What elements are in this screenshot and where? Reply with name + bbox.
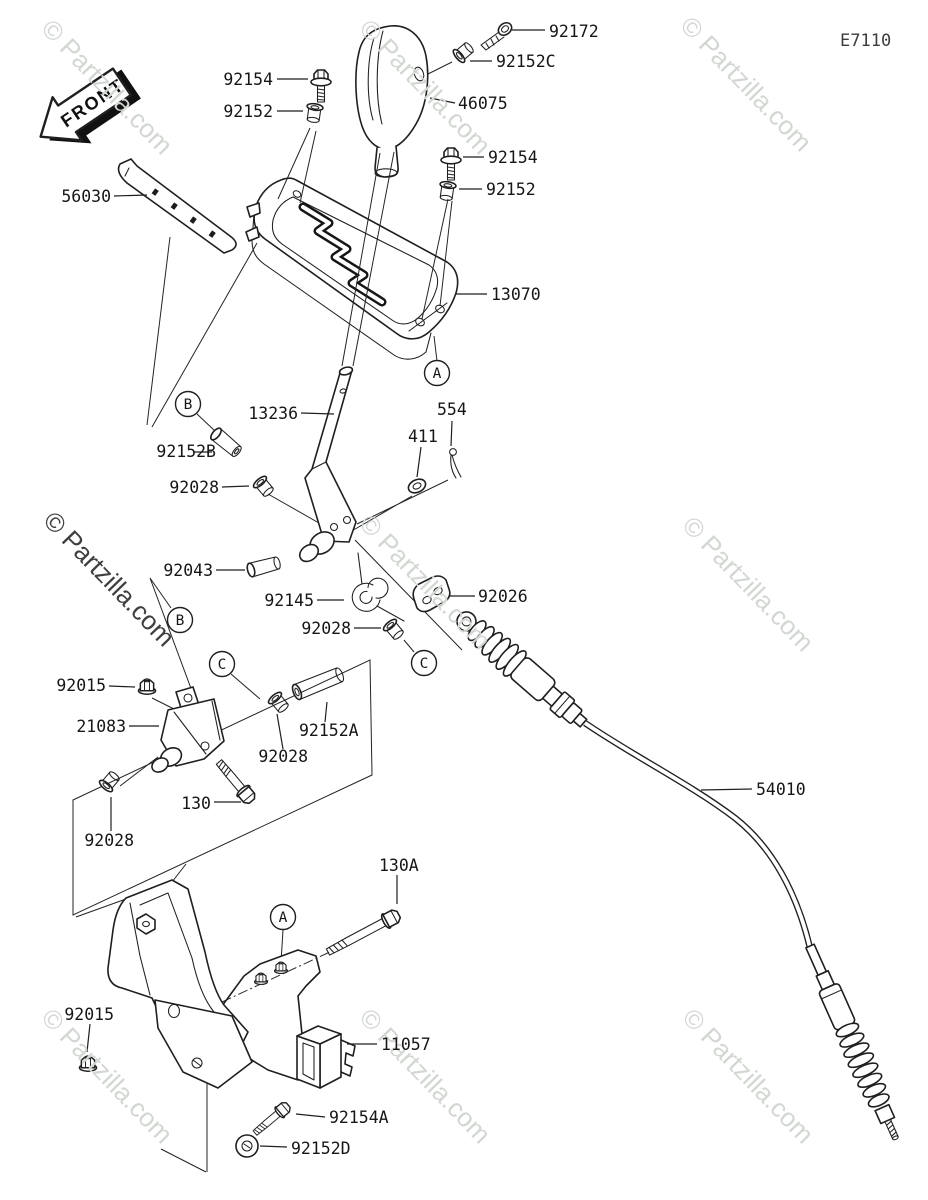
- svg-text:A: A: [433, 366, 442, 382]
- part-label-92026[interactable]: 92026: [478, 587, 528, 606]
- part-label-411[interactable]: 411: [408, 427, 438, 446]
- part-label-13236[interactable]: 13236: [248, 404, 298, 423]
- parts-diagram-page: FRONT: [0, 0, 928, 1200]
- subassembly-frame: [73, 660, 372, 915]
- watermark: © Partzilla.com: [675, 10, 818, 157]
- part-label-56030[interactable]: 56030: [61, 187, 111, 206]
- part-label-54010[interactable]: 54010: [756, 780, 806, 799]
- watermark: © Partzilla.com: [38, 505, 181, 652]
- clevis-pin-92043: [246, 556, 282, 578]
- bolt-130: [213, 757, 258, 806]
- callout-A-panel: A: [425, 361, 450, 386]
- part-label-92043[interactable]: 92043: [163, 561, 213, 580]
- shift-cable-54010: [449, 603, 909, 1145]
- part-label-92028-cable[interactable]: 92028: [301, 619, 351, 638]
- part-label-92028-lower[interactable]: 92028: [84, 831, 134, 850]
- part-label-46075[interactable]: 46075: [458, 94, 508, 113]
- part-label-92154A[interactable]: 92154A: [329, 1108, 389, 1127]
- watermark: © Partzilla.com: [354, 508, 497, 655]
- part-label-92154-right[interactable]: 92154: [488, 148, 538, 167]
- svg-text:C: C: [218, 657, 227, 673]
- svg-text:B: B: [184, 397, 193, 413]
- mount-bracket-11057: [108, 880, 355, 1088]
- svg-text:A: A: [279, 910, 288, 926]
- nut-92015-upper: [138, 679, 155, 694]
- callout-A-bracket: A: [271, 905, 296, 930]
- shift-gate-panel-13070: [246, 178, 458, 359]
- part-label-92152-right[interactable]: 92152: [486, 180, 536, 199]
- part-label-92028-bracket[interactable]: 92028: [258, 747, 308, 766]
- sleeve-92152A: [291, 666, 346, 701]
- bushing-92152-right: [438, 181, 456, 202]
- bolt-92154-left: [311, 70, 331, 102]
- part-label-92145[interactable]: 92145: [264, 591, 314, 610]
- bushing-92028-upper: [252, 474, 276, 499]
- knob-screw-92172: [481, 20, 514, 50]
- watermark: © Partzilla.com: [677, 510, 820, 657]
- bolt-130A: [324, 907, 402, 959]
- bushing-92152-left: [305, 103, 323, 124]
- cotter-pin-554: [450, 449, 461, 478]
- change-lever-bracket-21083: [149, 687, 224, 775]
- shift-lever-13236: [297, 366, 356, 565]
- bolt-92154A: [251, 1100, 293, 1138]
- bushing-92028-lower: [98, 769, 122, 794]
- part-label-92015-lower[interactable]: 92015: [64, 1005, 114, 1024]
- callout-C-bracket: C: [210, 652, 235, 677]
- part-label-92152C[interactable]: 92152C: [496, 52, 556, 71]
- part-label-92152D[interactable]: 92152D: [291, 1139, 351, 1158]
- part-label-130[interactable]: 130: [181, 794, 211, 813]
- callout-C-cable: C: [412, 651, 437, 676]
- part-label-92015-upper[interactable]: 92015: [56, 676, 106, 695]
- part-label-13070[interactable]: 13070: [491, 285, 541, 304]
- part-label-11057[interactable]: 11057: [381, 1035, 431, 1054]
- watermark: © Partzilla.com: [677, 1002, 820, 1149]
- part-label-554[interactable]: 554: [437, 400, 467, 419]
- lever-position-plate-56030: [119, 159, 237, 253]
- part-label-92152B[interactable]: 92152B: [156, 442, 216, 461]
- part-label-130A[interactable]: 130A: [379, 856, 419, 875]
- callout-B-pin: B: [176, 392, 201, 417]
- gear-change-mechanism-diagram: FRONT: [0, 0, 928, 1200]
- part-label-92028-upper[interactable]: 92028: [169, 478, 219, 497]
- part-label-92154-topleft[interactable]: 92154: [223, 70, 273, 89]
- washer-411: [406, 477, 428, 496]
- washer-92152D: [236, 1135, 258, 1157]
- watermark: © Partzilla.com: [354, 1002, 497, 1149]
- diagram-code: E7110: [840, 31, 891, 51]
- part-label-92152A[interactable]: 92152A: [299, 721, 359, 740]
- bolt-92154-right: [441, 148, 461, 180]
- part-label-92152-topleft[interactable]: 92152: [223, 102, 273, 121]
- svg-text:C: C: [420, 656, 429, 672]
- part-label-21083[interactable]: 21083: [76, 717, 126, 736]
- part-label-92172[interactable]: 92172: [549, 22, 599, 41]
- bushing-92028-cable: [382, 617, 406, 642]
